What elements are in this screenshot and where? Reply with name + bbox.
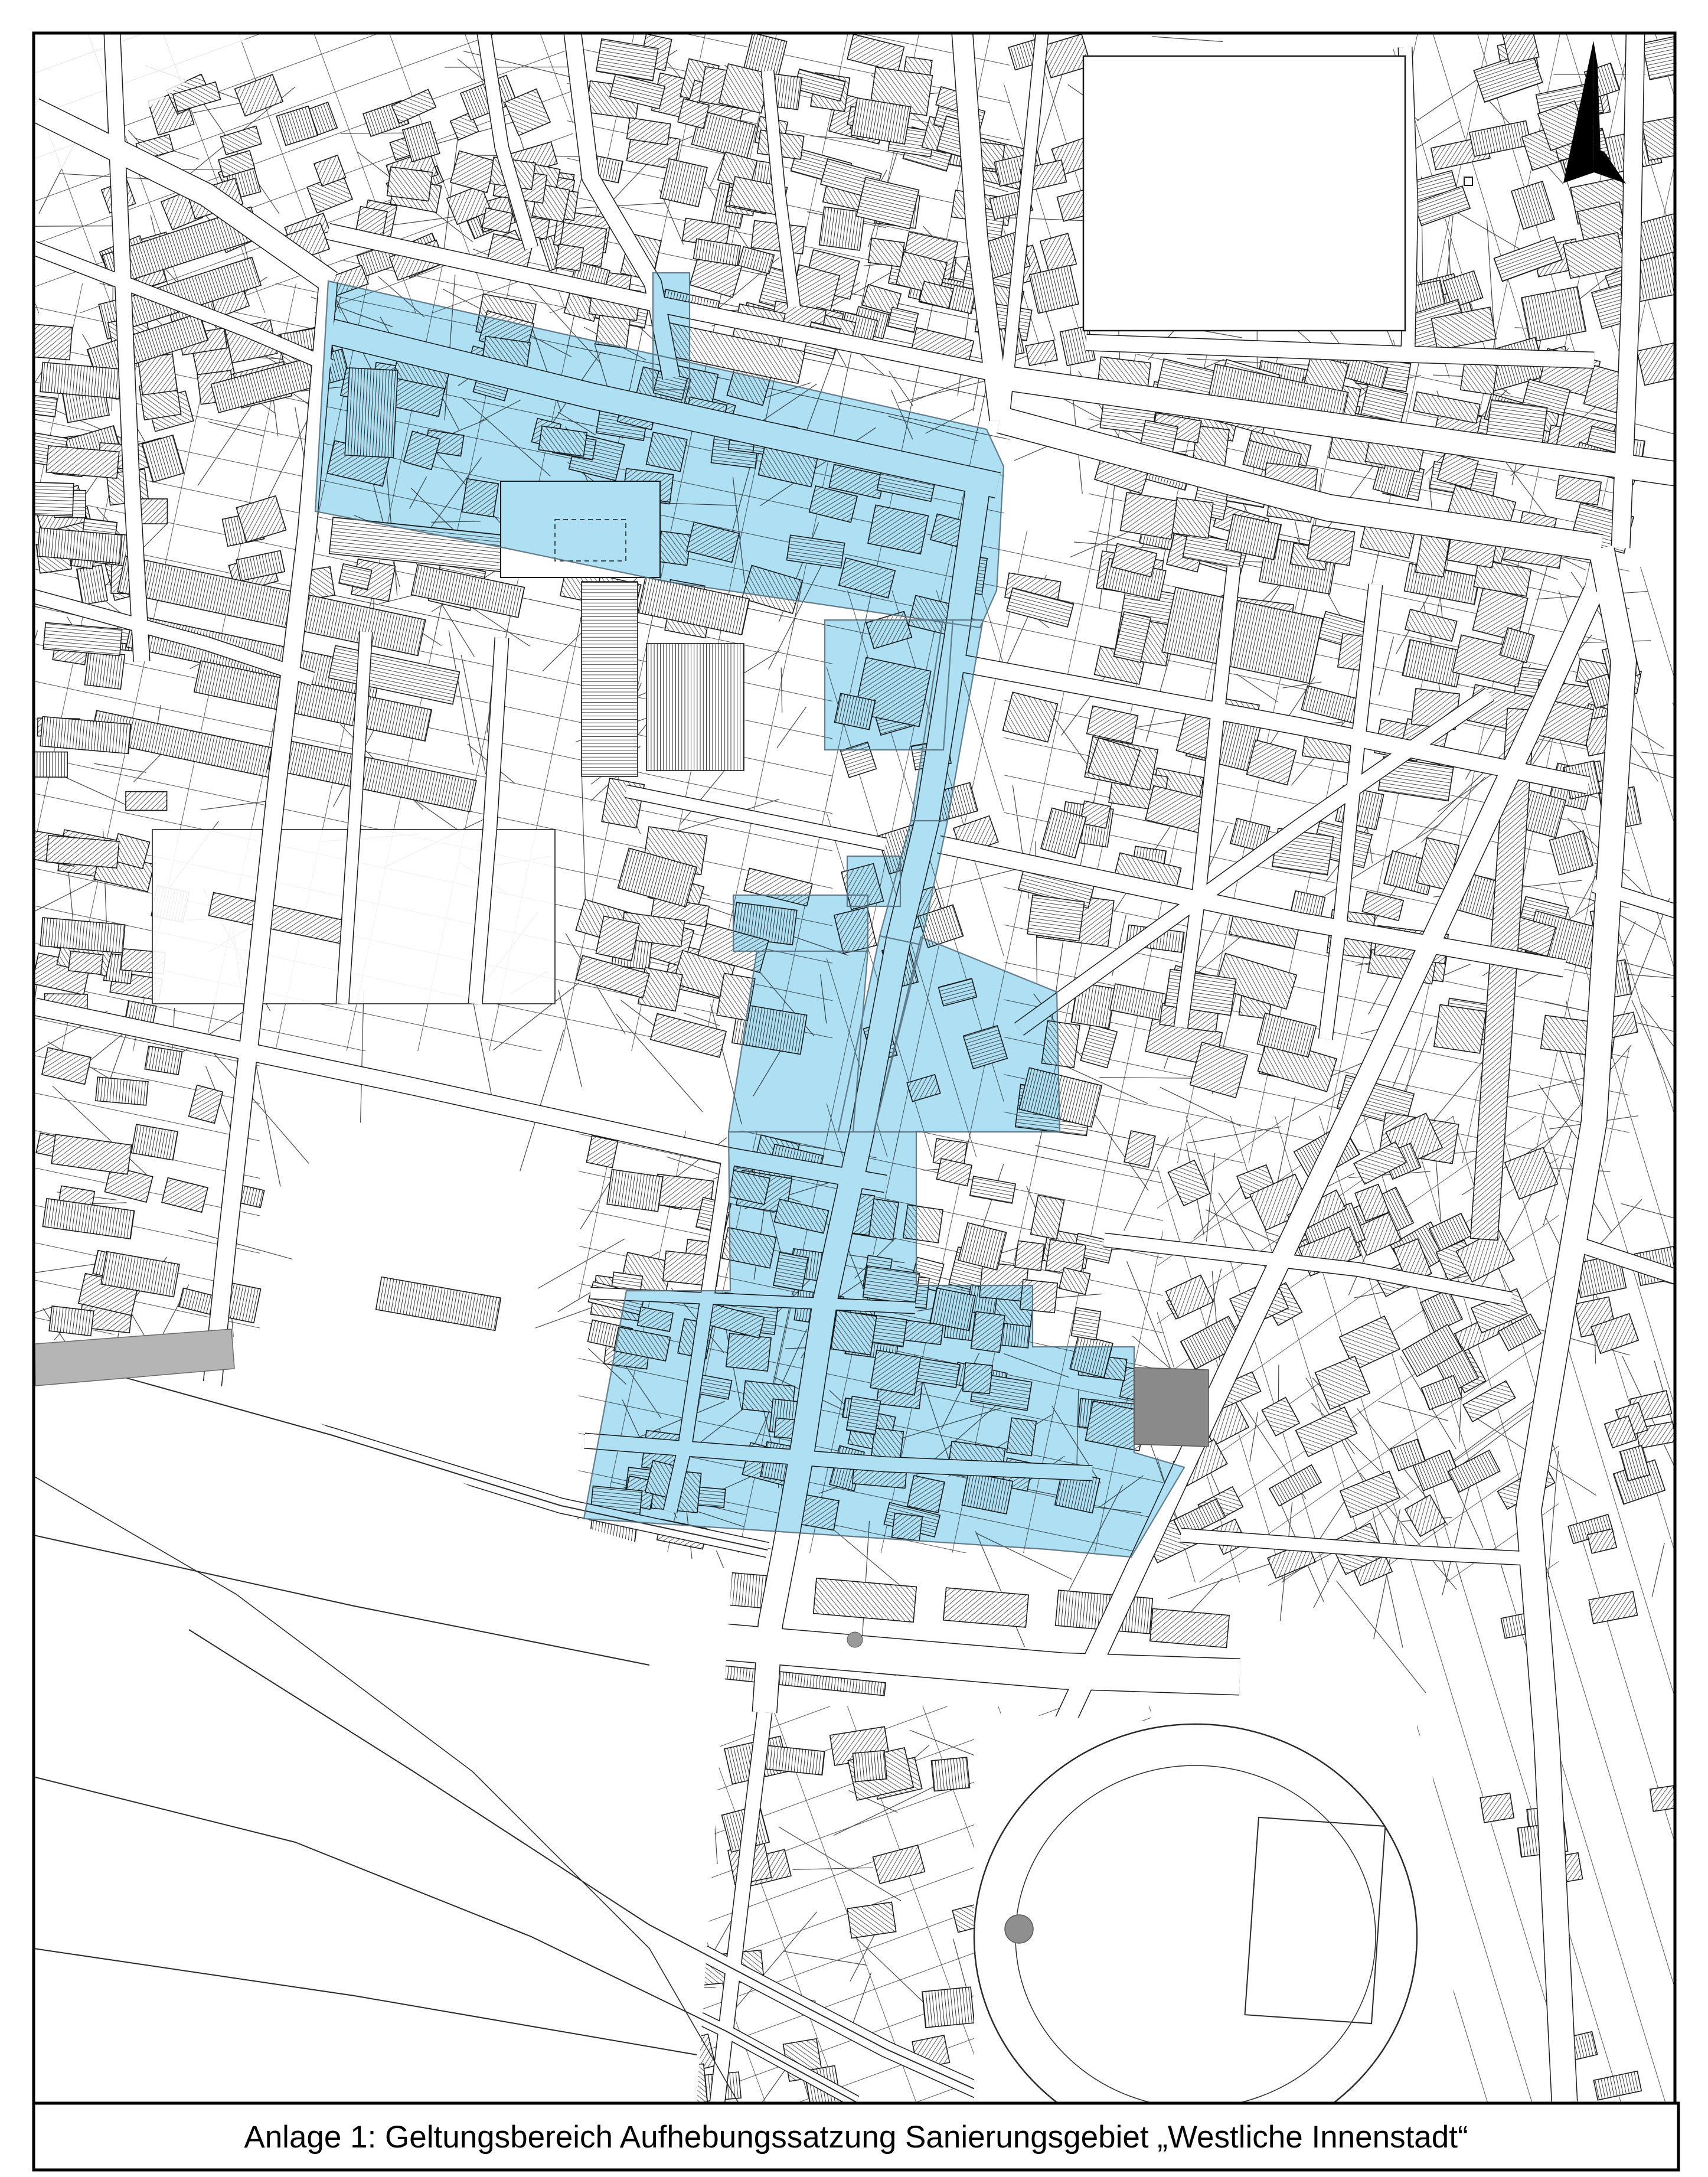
svg-text:Anlage 1: Geltungsbereich Aufh: Anlage 1: Geltungsbereich Aufhebungssatz…: [244, 2120, 1468, 2155]
